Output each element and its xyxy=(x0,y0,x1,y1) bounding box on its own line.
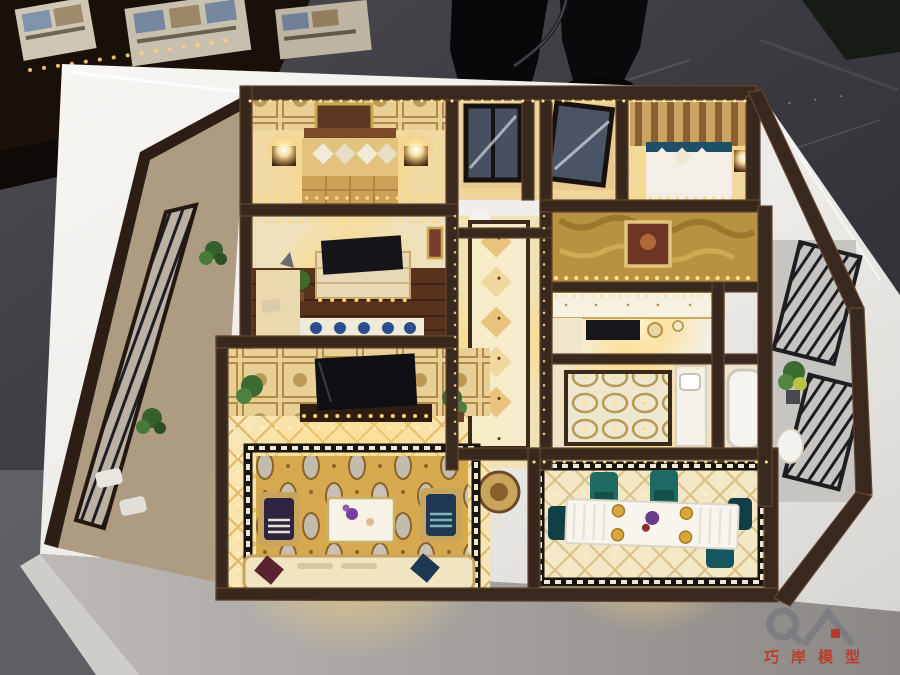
gold-charger xyxy=(612,505,624,517)
bathroom xyxy=(566,366,762,448)
outer-top-wall xyxy=(246,86,756,100)
sink xyxy=(680,374,700,390)
bedroom2-west-wall xyxy=(616,100,628,204)
logo-red-square xyxy=(831,629,840,638)
open-book xyxy=(261,299,280,313)
coffee-table xyxy=(328,498,394,542)
card-plan xyxy=(133,10,165,34)
bedside-lamp xyxy=(266,132,302,168)
glass-door-ajar xyxy=(548,103,613,185)
hall-top-wall xyxy=(458,228,552,238)
slat-headboard-wall xyxy=(630,102,756,146)
upper-left-wall xyxy=(240,86,252,348)
card-plan xyxy=(204,0,236,24)
right-inner-wall xyxy=(758,206,772,506)
toilet xyxy=(777,429,803,463)
tagline-line3: Design xyxy=(858,631,879,638)
painting-figure xyxy=(640,234,656,250)
dining-chair xyxy=(650,470,678,506)
brand-chinese: 巧岸模型 xyxy=(764,648,872,666)
foyer xyxy=(552,212,760,282)
bedside-lamp xyxy=(398,132,434,168)
gold-bowl xyxy=(673,321,683,331)
foyer-kitchen-wall xyxy=(552,282,760,292)
framed-artwork xyxy=(316,104,372,130)
framed-art xyxy=(428,228,442,258)
row1-wall-left xyxy=(240,204,458,216)
study-living-wall xyxy=(216,336,458,348)
fruit-bowl xyxy=(366,518,374,526)
hall-west-wall xyxy=(446,100,458,470)
photo-scale-model-scene: Q An'an Models Design 巧岸模型 xyxy=(0,0,900,675)
gold-charger xyxy=(679,531,691,543)
dining-top-wall xyxy=(458,448,776,460)
living-left-wall xyxy=(216,336,228,600)
medallion-center xyxy=(490,483,508,501)
hall-east-wall xyxy=(540,100,552,470)
dining-room xyxy=(540,466,762,582)
dining-west-wall xyxy=(528,448,540,600)
sofa xyxy=(244,553,474,590)
floorplan-card xyxy=(275,0,372,59)
armchair-left xyxy=(258,492,300,546)
card-plan xyxy=(282,12,310,31)
card-plan xyxy=(169,5,201,29)
gold-bowl xyxy=(648,323,662,337)
tagline-line1: Q An'an xyxy=(858,613,882,620)
bathtub xyxy=(728,370,762,448)
gold-charger xyxy=(680,507,692,519)
blue-rug xyxy=(300,318,424,338)
dining-table xyxy=(565,499,738,549)
bed-teal-runner xyxy=(646,142,732,152)
outer-bottom-wall xyxy=(216,588,778,602)
armchair-right xyxy=(420,488,462,542)
wardrobe-divider xyxy=(522,100,534,200)
oval-pattern-rug xyxy=(566,372,670,444)
cooktop xyxy=(586,320,640,340)
television xyxy=(321,235,403,274)
scene-canvas: Q An'an Models Design 巧岸模型 xyxy=(0,0,900,675)
tagline-line2: Models xyxy=(858,622,879,629)
card-plan xyxy=(311,9,339,28)
row1-wall-right xyxy=(540,200,760,212)
kitchen-cabinet xyxy=(552,318,582,354)
bath-east-wall xyxy=(712,282,724,462)
gold-charger xyxy=(611,529,623,541)
kitchen-bath-wall xyxy=(552,354,764,364)
